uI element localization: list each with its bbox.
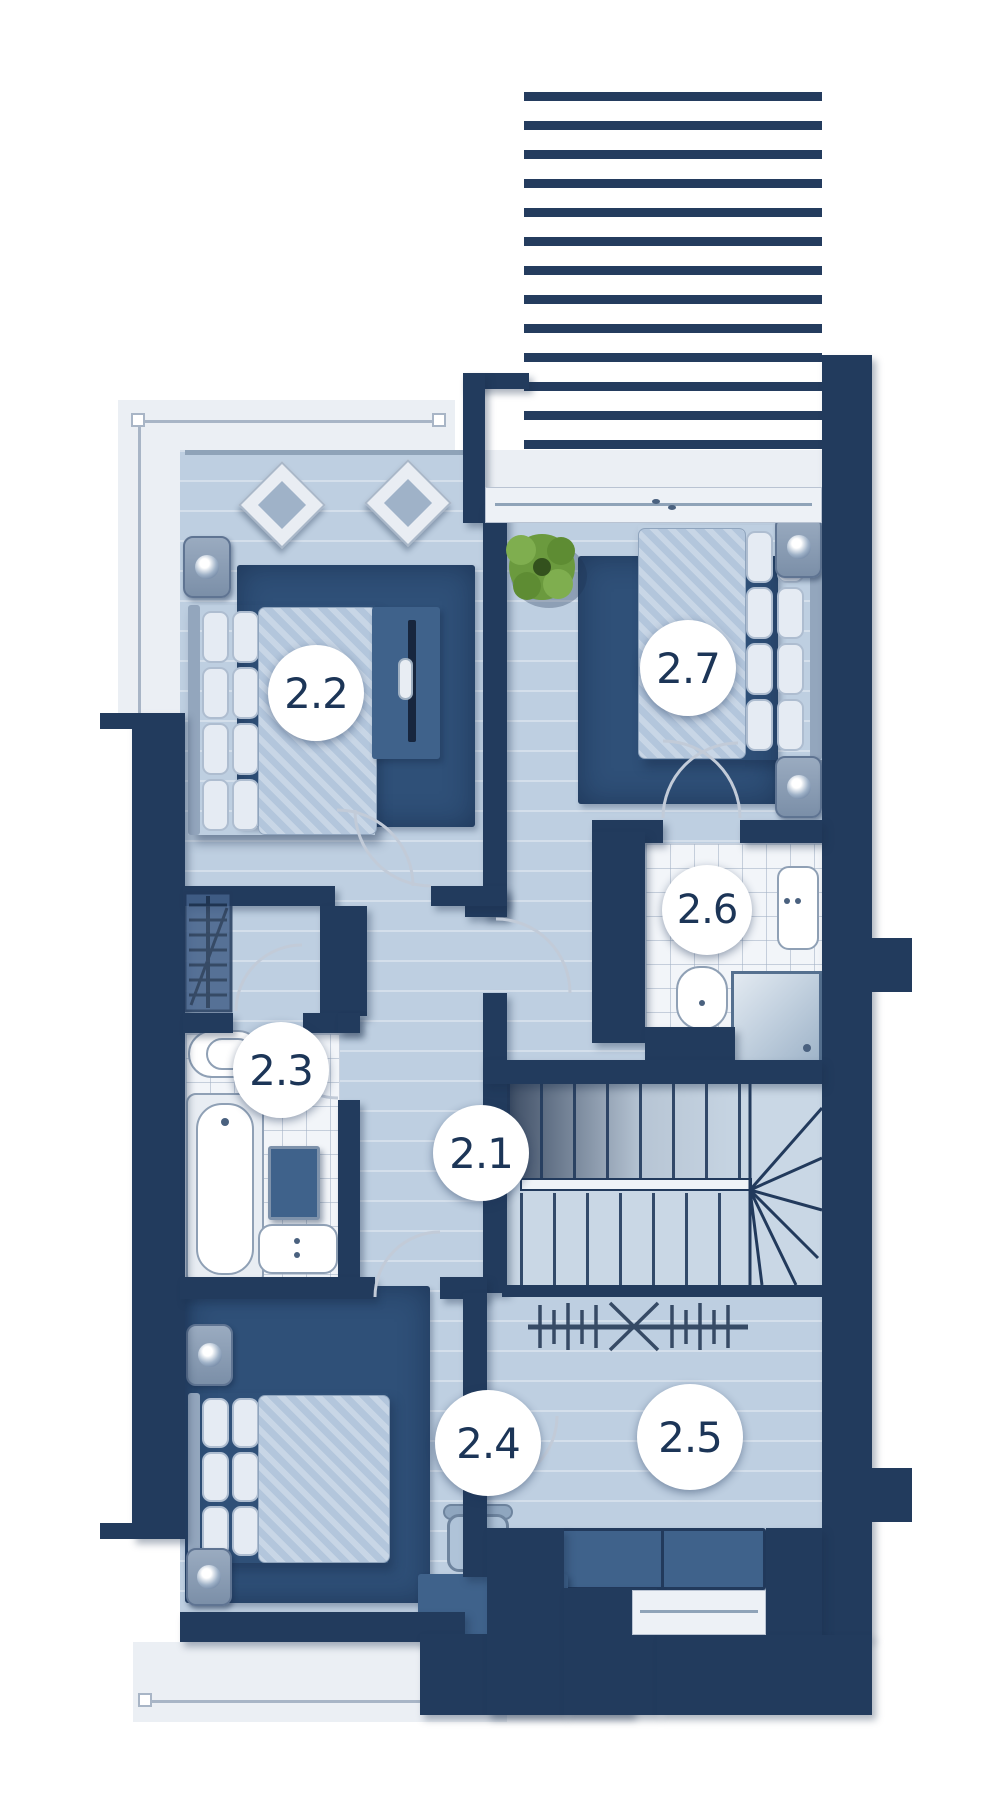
- sink-icon: [258, 1224, 338, 1274]
- room-label-2-3: 2.3: [233, 1022, 329, 1118]
- floor-plan-canvas: 2.1 2.2 2.3 2.4 2.5 2.6 2.7: [0, 0, 999, 1808]
- room-label-text: 2.4: [456, 1419, 520, 1468]
- stairs-lower-flight: [520, 1193, 750, 1285]
- washer-icon: [268, 1146, 320, 1220]
- wall-2-7-south-right: [740, 820, 822, 843]
- sink-icon: [777, 866, 819, 950]
- wall-pier: [100, 713, 132, 729]
- window-handle: [652, 499, 660, 504]
- rail-post: [138, 1693, 152, 1707]
- remote: [398, 658, 413, 700]
- wall-stairs-north: [483, 1060, 822, 1084]
- wall-2-6-south: [645, 1027, 735, 1063]
- wall-2-2-south-left: [183, 886, 335, 906]
- wardrobe-cabinets-2-5: [560, 1528, 766, 1590]
- faucet: [294, 1238, 300, 1244]
- room-label-text: 2.2: [284, 669, 348, 718]
- bed-2-4: [188, 1393, 388, 1563]
- wall-pier: [866, 1468, 912, 1522]
- wall-closet-right: [320, 906, 367, 1016]
- speaker-icon: [186, 1324, 233, 1386]
- room-label-2-5: 2.5: [637, 1384, 743, 1490]
- room-label-text: 2.6: [677, 887, 738, 933]
- wall-balcony-left: [463, 373, 485, 523]
- room-label-2-7: 2.7: [640, 620, 736, 716]
- rail-post: [131, 413, 145, 427]
- drain: [221, 1118, 229, 1126]
- wall-hall-divider-upper: [483, 505, 507, 917]
- room-label-2-2: 2.2: [268, 645, 364, 741]
- window-2-5-line: [640, 1610, 758, 1613]
- terrace-rail-left: [138, 420, 141, 713]
- window-line-top: [185, 450, 485, 455]
- stairs-upper-flight: [507, 1084, 753, 1180]
- wall-closet-south-left: [183, 1013, 233, 1033]
- wall-2-3-right-lower: [338, 1100, 360, 1279]
- faucet: [784, 898, 790, 904]
- room-label-2-1: 2.1: [433, 1105, 529, 1201]
- wall-exterior-step2: [487, 1528, 564, 1715]
- stairs-handrail: [520, 1178, 752, 1191]
- pergola-stripes: [524, 92, 822, 480]
- balcony-floor: [485, 450, 822, 487]
- faucet: [795, 898, 801, 904]
- shower-drain: [803, 1044, 811, 1052]
- wall-2-6-left: [592, 832, 645, 1043]
- room-label-2-4: 2.4: [435, 1390, 541, 1496]
- bathtub-basin: [196, 1103, 254, 1275]
- speaker-icon: [775, 756, 822, 818]
- wall-2-5-south-right: [766, 1528, 822, 1638]
- speaker-icon: [186, 1548, 232, 1606]
- wall-stairs-south: [502, 1285, 822, 1297]
- speaker-icon: [775, 516, 822, 578]
- room-label-text: 2.3: [249, 1046, 313, 1095]
- room-label-2-6: 2.6: [662, 865, 752, 955]
- faucet: [294, 1252, 300, 1258]
- flush-button: [699, 1000, 705, 1006]
- rail-post: [432, 413, 446, 427]
- wall-2-4-north-left: [180, 1277, 375, 1299]
- wall-2-3-right-upper: [338, 1013, 360, 1033]
- room-label-text: 2.7: [656, 644, 720, 693]
- wall-pier: [100, 1523, 132, 1539]
- speaker-icon: [183, 536, 231, 598]
- wall-2-4-2-5-divider-lower: [463, 1487, 487, 1577]
- wall-2-2-south-right: [431, 886, 507, 906]
- room-label-text: 2.1: [449, 1129, 513, 1178]
- wall-pier: [872, 938, 912, 992]
- wall-exterior-right: [822, 355, 872, 1638]
- wall-exterior-left: [132, 713, 185, 1539]
- terrace-left: [118, 400, 180, 715]
- wall-under-window: [657, 1635, 872, 1715]
- terrace-rail-top: [132, 420, 442, 423]
- toilet-icon: [676, 966, 728, 1030]
- window-handle: [668, 505, 676, 510]
- room-label-text: 2.5: [658, 1413, 722, 1462]
